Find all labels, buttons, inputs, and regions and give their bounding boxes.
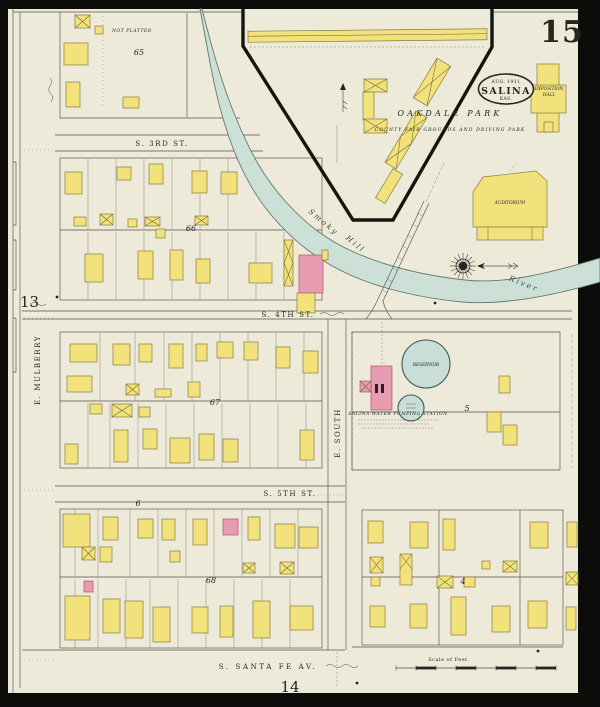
scale-label: Scale of Feet. [428,657,470,663]
street-label-3rd: S. 3RD ST. [135,140,188,148]
building [300,430,314,460]
building [499,376,510,393]
stamp-date: AUG. 1911 [491,79,521,85]
building [276,347,290,368]
building [155,389,171,397]
building [192,171,207,193]
building [221,172,237,194]
building [188,382,200,397]
building [193,519,207,545]
building [103,599,120,633]
building [63,514,90,547]
building [65,444,78,464]
building [244,342,258,360]
building [138,251,153,279]
not-platted-label: NOT PLATTED [111,29,152,34]
building [196,259,210,283]
pumping-station-label: SALINA WATER PUMPING STATION [348,412,447,417]
building [443,519,455,550]
building [149,164,163,184]
block-number-5: 5 [464,404,469,413]
park-name: OAKDALE PARK [397,109,502,118]
building [451,597,466,635]
building [220,606,233,637]
street-label-mulberry: E. MULBERRY [34,335,42,405]
auditorium-label: AUDITORIUM [494,200,526,205]
grandstand-building [248,29,487,43]
exposition-hall-label-1: EXPOSITION [534,86,564,91]
building [410,522,428,548]
street-label-santa-fe: S. SANTA FE AV. [219,663,318,671]
block-number-68: 68 [206,576,216,585]
building [153,607,170,642]
building [297,293,315,313]
brick-building [223,519,238,535]
building [487,412,501,432]
building [67,376,92,392]
building [64,43,88,65]
building [143,429,157,449]
building [192,607,208,633]
building [125,601,143,638]
building [371,577,380,586]
building [95,26,103,34]
block-number-67: 67 [210,398,221,407]
building [530,522,548,548]
building [170,250,183,280]
building [217,342,233,358]
building [90,404,102,414]
reservoir-label: RESERVOIR [412,362,439,367]
building [492,606,510,632]
stamp-city: SALINA [481,86,531,97]
building [139,407,150,417]
building [74,217,86,226]
street-label-5th: S. 5TH ST. [263,490,316,498]
building [253,601,270,638]
sanborn-map-sheet: AUG. 1911 SALINA KAS. Scale of Feet. 15 … [0,0,600,707]
building [162,519,175,540]
sheet-ref-bottom: 14 [280,678,299,696]
brick-building [299,255,323,293]
street-label-4th: S. 4TH ST. [261,311,314,319]
building [70,344,97,362]
stamp-state: KAS. [500,96,513,102]
building [299,527,318,548]
building [482,561,490,569]
building [138,519,153,538]
building [223,439,238,462]
building [66,82,80,107]
building [170,438,190,463]
building [156,229,165,238]
brick-building [84,581,93,592]
building [503,425,517,445]
block-number-65: 65 [134,48,144,57]
block-number-4: 4 [459,577,465,586]
building [170,551,180,562]
building [139,344,152,362]
building [528,601,547,628]
building [113,344,130,365]
building [249,263,272,283]
block-number-6: 6 [135,499,140,508]
building [65,172,82,194]
map-canvas: AUG. 1911 SALINA KAS. Scale of Feet. 15 … [0,0,600,707]
building [322,250,328,260]
building [85,254,103,282]
building [128,219,137,227]
building [199,434,214,460]
building [123,97,139,108]
park-subtitle: COUNTY FAIR GROUNDS AND DRIVING PARK [375,127,526,133]
building [290,606,313,630]
salina-date-stamp: AUG. 1911 SALINA KAS. [479,74,534,104]
building [370,606,385,627]
building [566,607,576,630]
building [169,344,183,368]
building [103,517,118,540]
street-label-south: E. SOUTH [334,408,342,458]
building [248,517,260,540]
building [196,344,207,361]
building [464,577,475,587]
building [567,522,577,547]
sheet-ref-left: 13 [20,293,39,311]
building [100,547,112,562]
sheet-number: 15 [540,15,584,50]
building [400,554,412,585]
building [117,167,131,180]
building [65,596,90,640]
block-number-66: 66 [186,224,196,233]
building [368,521,383,543]
building [284,240,293,286]
building [410,604,427,628]
exposition-hall-label-2: HALL [542,92,555,97]
building [275,524,295,548]
building [303,351,318,373]
building [114,430,128,462]
